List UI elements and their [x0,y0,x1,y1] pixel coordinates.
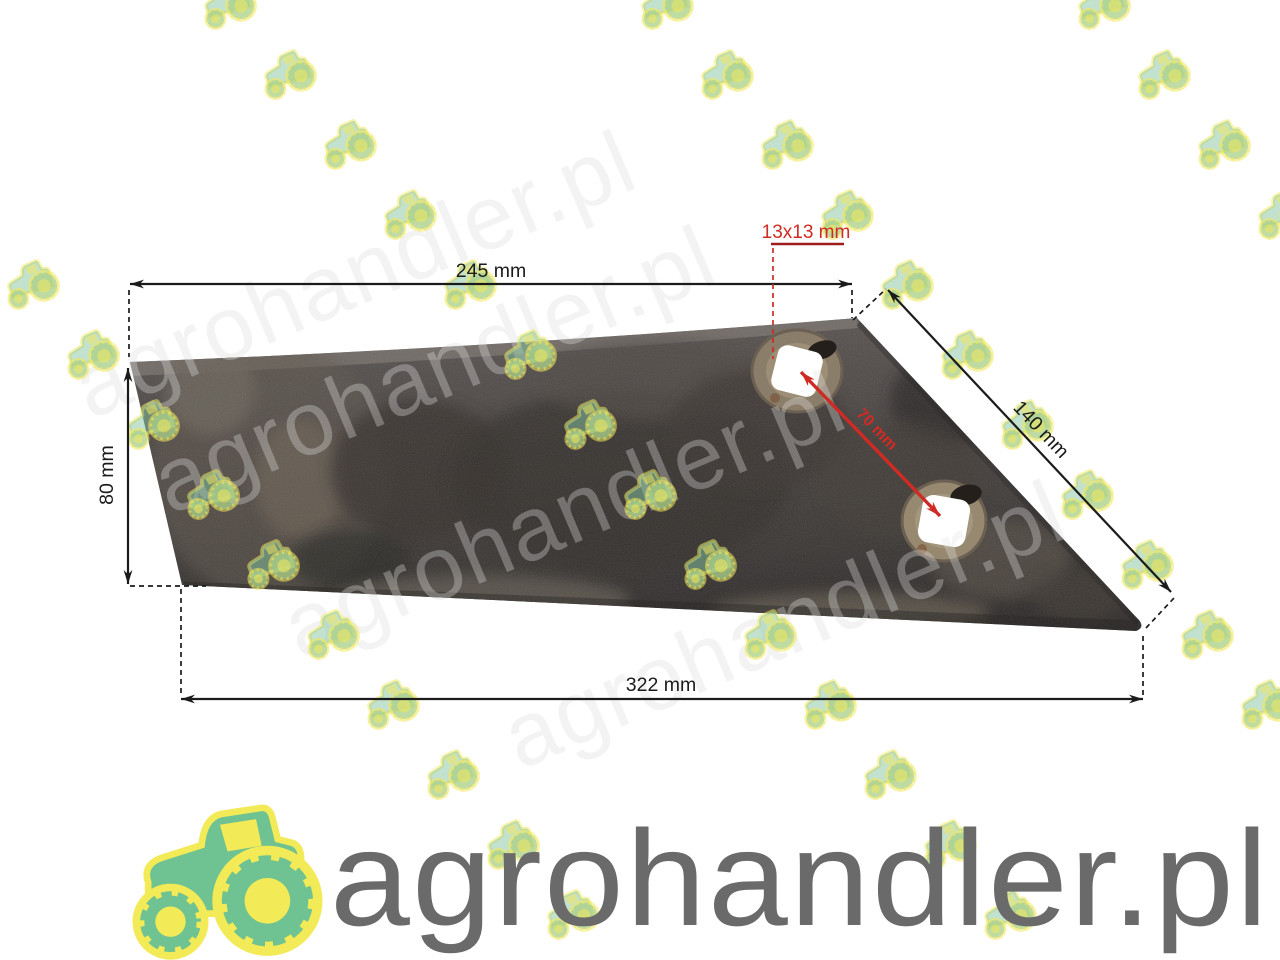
tractor-watermark-icon [317,117,381,173]
tractor-watermark-icon [1234,677,1280,733]
tractor-watermark-icon [197,0,261,32]
tractor-watermark-icon [797,677,861,733]
tractor-watermark-icon [754,117,818,173]
watermarked-product-photo: agrohandler.pl agrohandler.pl agrohandle… [0,0,1280,960]
tractor-watermark-icon [1251,187,1280,243]
tractor-watermark-icon [1071,0,1135,32]
tractor-watermark-icon [874,257,938,313]
brand-wordmark: agrohandler.pl [330,802,1270,954]
dim-left-height-label: 80 mm [96,445,118,505]
tractor-watermark-icon [0,187,4,243]
brand-tractor-icon [133,811,323,960]
brand-logo: agrohandler.pl [133,802,1271,960]
tractor-watermark-icon [694,47,758,103]
tractor-watermark-icon [857,747,921,803]
annotated-part-drawing: agrohandler.pl agrohandler.pl agrohandle… [0,0,1280,960]
tractor-watermark-icon [634,0,698,32]
tractor-watermark-icon [420,747,484,803]
tractor-watermark-icon [0,257,64,313]
tractor-watermark-icon [1131,47,1195,103]
dim-top-width-label: 245 mm [456,260,526,282]
tractor-watermark-icon [1191,117,1255,173]
tractor-watermark-icon [257,47,321,103]
dim-bottom-width-label: 322 mm [626,674,696,696]
hole-size-label: 13x13 mm [762,222,851,243]
tractor-watermark-icon [1054,467,1118,523]
tractor-watermark-icon [360,677,424,733]
tractor-watermark-icon [1174,607,1238,663]
